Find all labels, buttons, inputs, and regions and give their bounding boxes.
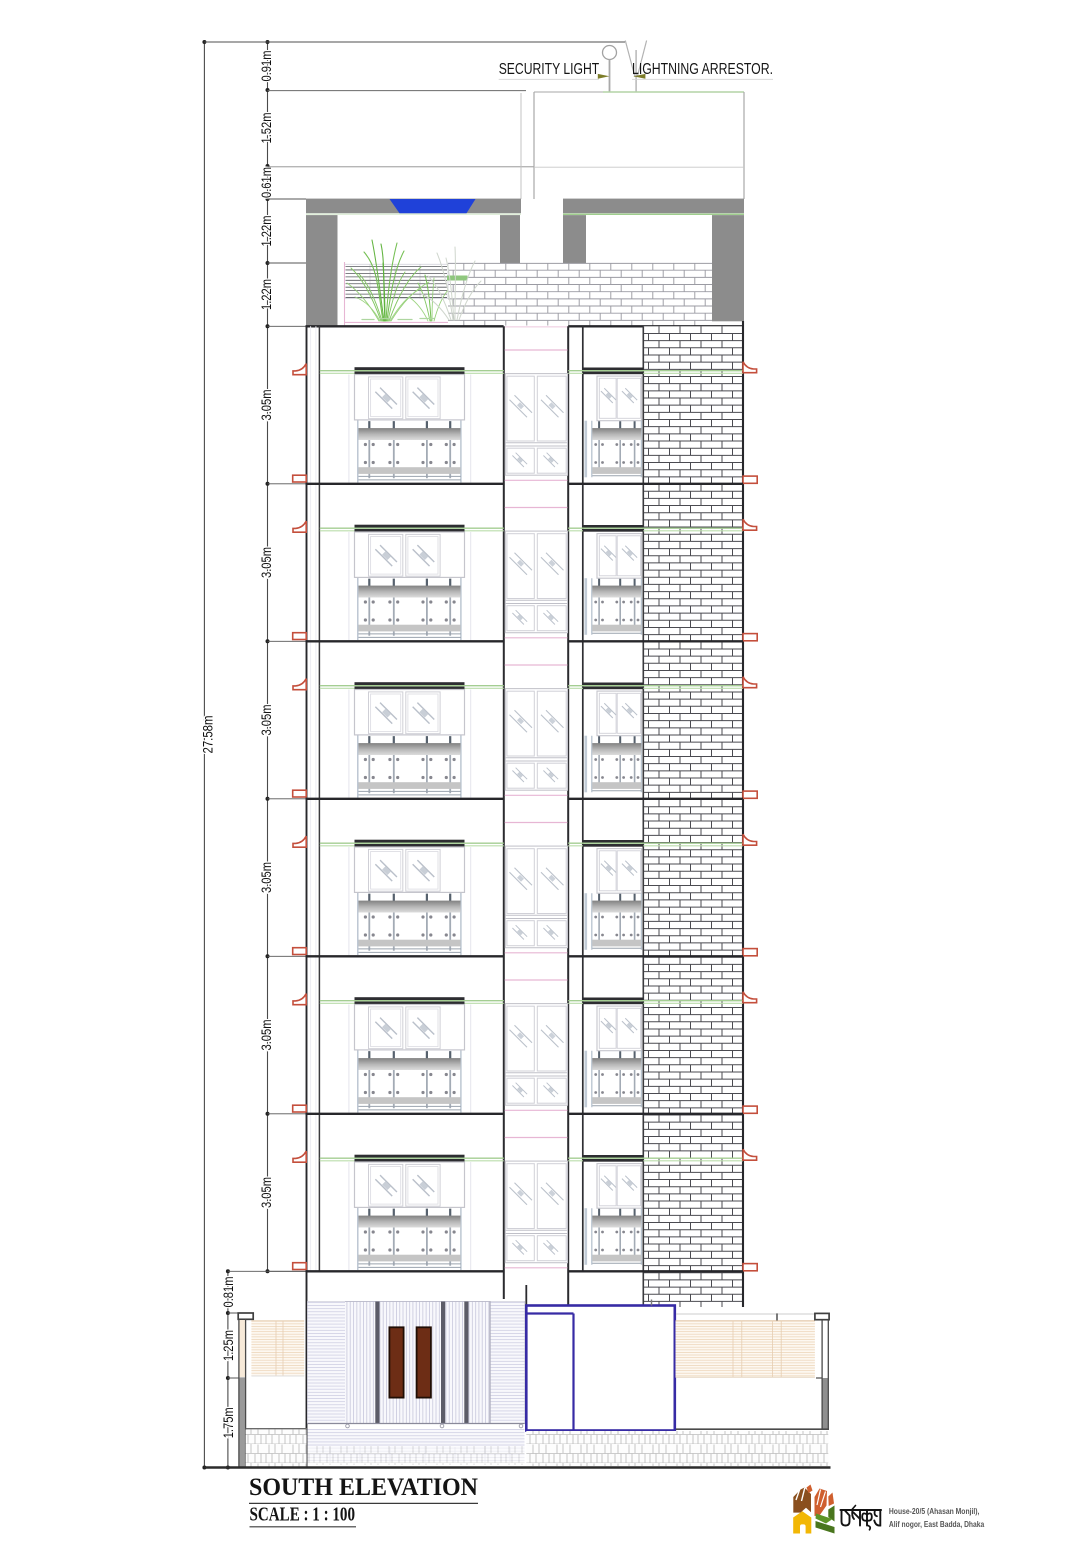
svg-text:3.05m: 3.05m: [258, 705, 274, 736]
svg-text:3.05m: 3.05m: [258, 390, 274, 421]
svg-text:SCALE : 1 : 100: SCALE : 1 : 100: [250, 1504, 356, 1525]
svg-text:0.61m: 0.61m: [258, 167, 274, 198]
svg-text:1.25m: 1.25m: [220, 1330, 236, 1361]
svg-text:0.81m: 0.81m: [220, 1277, 236, 1308]
svg-text:1.75m: 1.75m: [220, 1407, 236, 1438]
svg-text:LIGHTNING ARRESTOR.: LIGHTNING ARRESTOR.: [632, 61, 773, 78]
svg-text:27.58m: 27.58m: [200, 716, 216, 754]
svg-text:3.05m: 3.05m: [258, 1177, 274, 1208]
svg-text:0.91m: 0.91m: [258, 51, 274, 82]
svg-text:House-20/5 (Ahasan Monjil),: House-20/5 (Ahasan Monjil),: [889, 1507, 980, 1516]
svg-text:1.22m: 1.22m: [258, 216, 274, 247]
svg-text:3.05m: 3.05m: [258, 547, 274, 578]
svg-text:3.05m: 3.05m: [258, 862, 274, 893]
svg-text:3.05m: 3.05m: [258, 1020, 274, 1051]
svg-text:SECURITY LIGHT: SECURITY LIGHT: [499, 61, 600, 78]
svg-text:SOUTH ELEVATION: SOUTH ELEVATION: [249, 1474, 478, 1501]
svg-text:1.22m: 1.22m: [258, 279, 274, 310]
svg-text:1.52m: 1.52m: [258, 113, 274, 144]
svg-text:Alif nogor, East Badda, Dhaka: Alif nogor, East Badda, Dhaka: [889, 1520, 985, 1529]
